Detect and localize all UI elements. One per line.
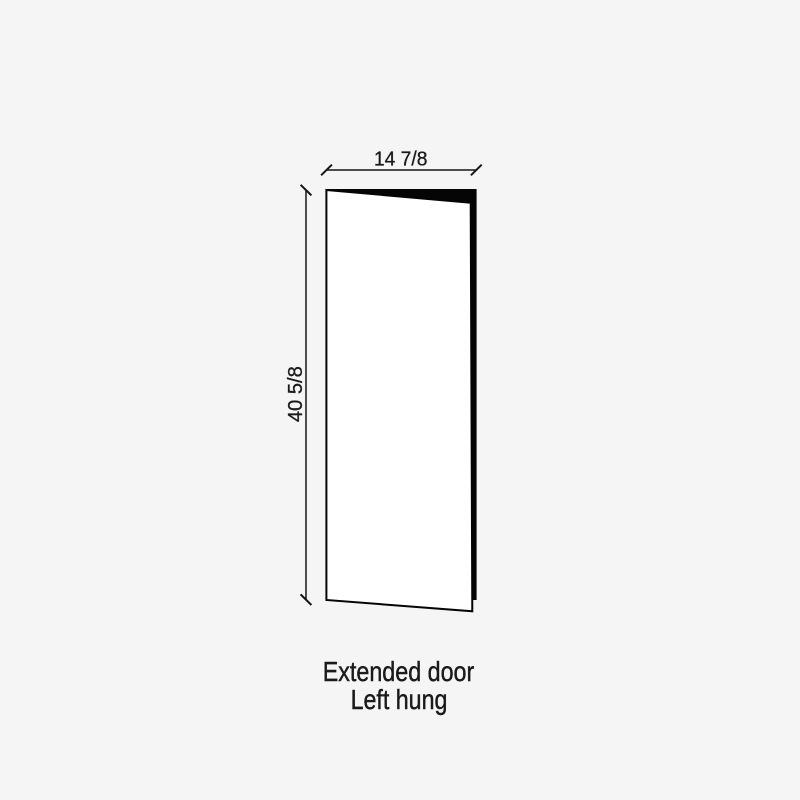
svg-text:Extended door: Extended door <box>323 656 475 687</box>
svg-text:Left hung: Left hung <box>351 684 448 715</box>
svg-text:14 7/8: 14 7/8 <box>374 149 428 171</box>
svg-text:40 5/8: 40 5/8 <box>285 366 307 422</box>
